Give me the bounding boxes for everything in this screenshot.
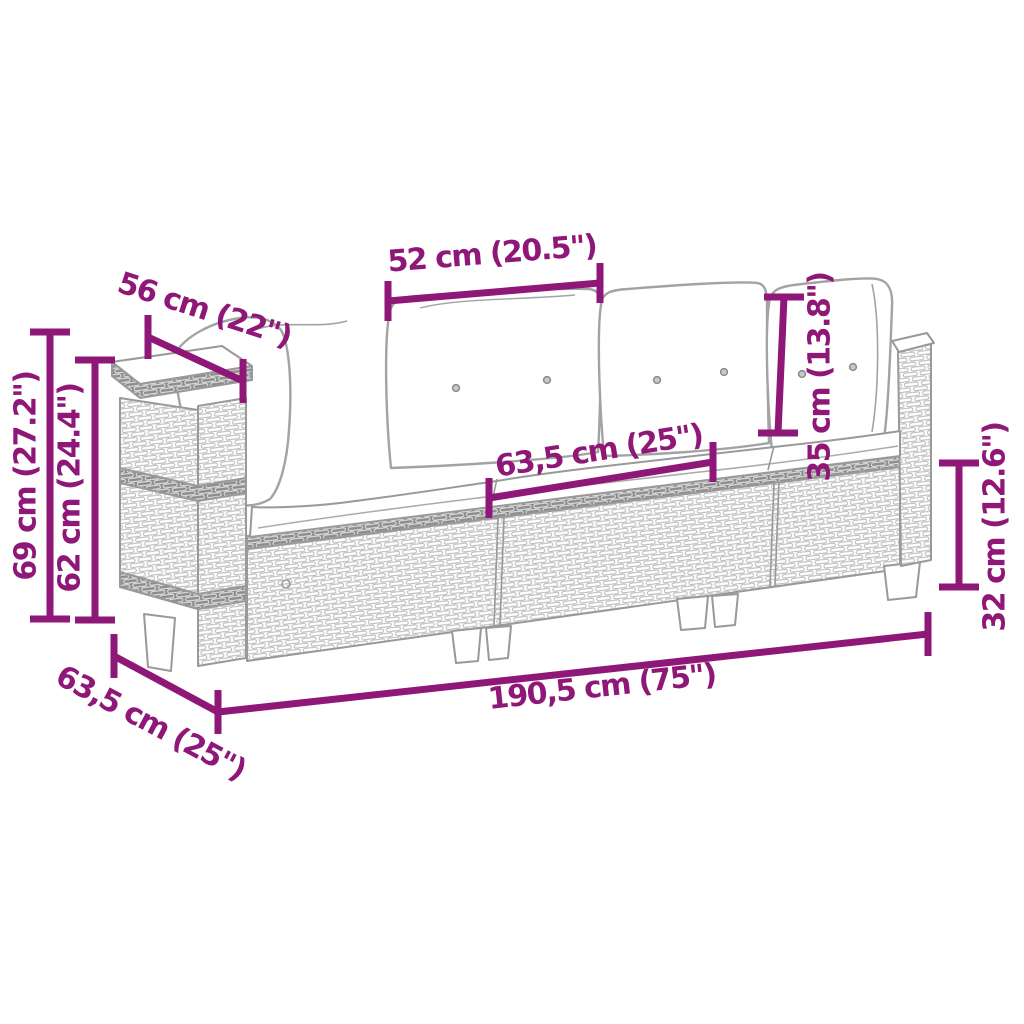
dimension-label: 190,5 cm (75") [486, 657, 717, 717]
armrest-front-face [198, 398, 246, 666]
dimension-label: 52 cm (20.5") [386, 228, 597, 279]
dimension-label: 69 cm (27.2") [9, 371, 44, 580]
sofa-leg [677, 596, 708, 630]
sofa-leg [712, 594, 738, 627]
cushion-button [721, 369, 728, 376]
sofa-leg [884, 562, 920, 600]
product-dimension-diagram: 52 cm (20.5") 56 cm (22") 69 cm (27.2") … [0, 0, 1024, 1024]
dimension-label: 62 cm (24.4") [53, 383, 88, 592]
dim-seat-height: 32 cm (12.6") [939, 422, 1013, 631]
dim-back-height: 62 cm (24.4") [53, 360, 116, 620]
dimension-label: 32 cm (12.6") [978, 422, 1013, 631]
cushion-button [544, 377, 551, 384]
dimension-label: 35 cm (13.8") [803, 272, 838, 481]
sofa-dimension-sketch: 52 cm (20.5") 56 cm (22") 69 cm (27.2") … [0, 0, 1024, 1024]
sofa-leg [486, 626, 511, 660]
cushion-button [850, 364, 857, 371]
sofa-leg [452, 628, 481, 663]
cushion-button [453, 385, 460, 392]
cushion-button [654, 377, 661, 384]
right-side-panel [898, 344, 931, 566]
sofa-leg [144, 614, 175, 671]
